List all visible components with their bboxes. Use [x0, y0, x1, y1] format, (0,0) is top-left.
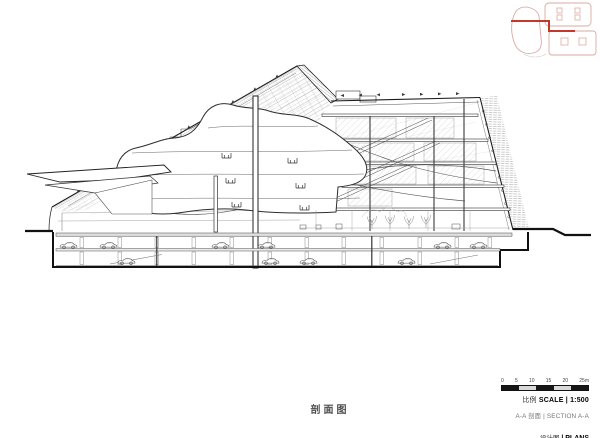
scale-bar-segment — [554, 386, 571, 390]
scale-bar-segment — [536, 386, 553, 390]
sheet-label-cn: 设计图 — [540, 435, 560, 438]
scale-label-cn: 比例 — [522, 397, 536, 404]
section-label-cn: A-A 剖面 — [515, 413, 541, 420]
scale-bar-segment — [571, 386, 588, 390]
drawing-sheet: 剖面图 0 5 10 15 20 25m 比例 SCALE | 1:500 — [0, 0, 600, 438]
scale-tick: 15 — [546, 378, 552, 384]
scale-tick: 5 — [515, 378, 518, 384]
sheet-label-en: | PLANS — [561, 435, 589, 438]
scale-bar-ticks: 0 5 10 15 20 25m — [501, 378, 589, 384]
scale-label-en: SCALE | 1:500 — [539, 397, 589, 404]
scale-bar-segment — [519, 386, 536, 390]
scale-bar-segment — [502, 386, 519, 390]
basement — [53, 232, 528, 267]
sheet-label: 设计图 | PLANS — [459, 432, 589, 438]
auditorium-shell — [116, 104, 367, 214]
scale-tick: 10 — [529, 378, 535, 384]
title-block: 0 5 10 15 20 25m 比例 SCALE | 1:500 A-A 剖面… — [459, 378, 589, 438]
canopy-wing — [27, 165, 171, 214]
building-section-drawing — [0, 0, 600, 438]
scale-label: 比例 SCALE | 1:500 — [459, 395, 589, 405]
key-plan — [511, 3, 596, 57]
scale-tick: 20 — [563, 378, 569, 384]
parked-cars — [60, 243, 487, 265]
scale-bar: 0 5 10 15 20 25m — [501, 378, 589, 391]
scale-bar-strip — [501, 385, 589, 391]
scale-tick: 0 — [501, 378, 504, 384]
section-label-en: | SECTION A-A — [543, 413, 589, 420]
scale-tick: 25m — [579, 378, 589, 384]
section-label: A-A 剖面 | SECTION A-A — [459, 411, 589, 420]
